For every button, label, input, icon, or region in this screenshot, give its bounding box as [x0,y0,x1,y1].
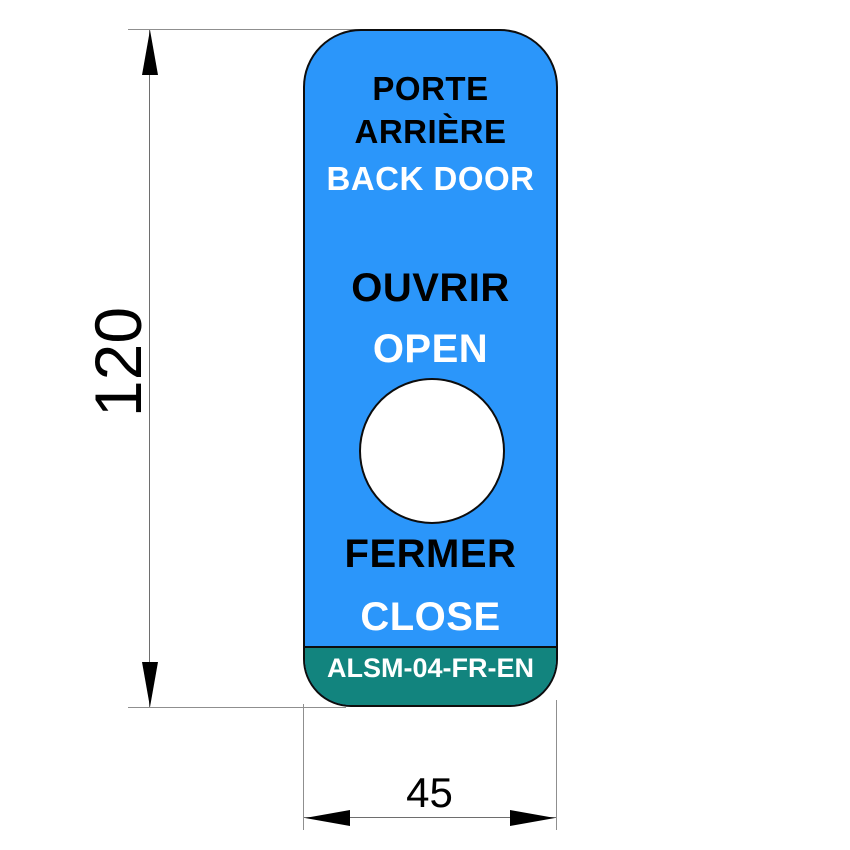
label-text-open: OPEN [305,329,556,369]
label-text-porte: PORTE [305,72,556,105]
label-text-fermer: FERMER [305,534,556,574]
height-arrow-down-icon [142,662,158,707]
width-dimension-value: 45 [303,772,556,814]
label-text-arriere: ARRIÈRE [305,115,556,148]
label-text-close: CLOSE [305,597,556,637]
mounting-hole [359,378,505,524]
extension-line-right [556,700,557,830]
part-number-text: ALSM-04-FR-EN [305,655,556,682]
extension-line-bottom [128,707,346,708]
technical-drawing: 120 45 PORTE ARRIÈRE BACK DOOR OUVRIR OP… [0,0,850,850]
height-dimension-value: 120 [85,307,151,417]
label-text-ouvrir: OUVRIR [305,268,556,308]
height-arrow-up-icon [142,30,158,75]
door-label-tag: PORTE ARRIÈRE BACK DOOR OUVRIR OPEN FERM… [303,29,558,707]
label-text-back-door: BACK DOOR [305,162,556,195]
